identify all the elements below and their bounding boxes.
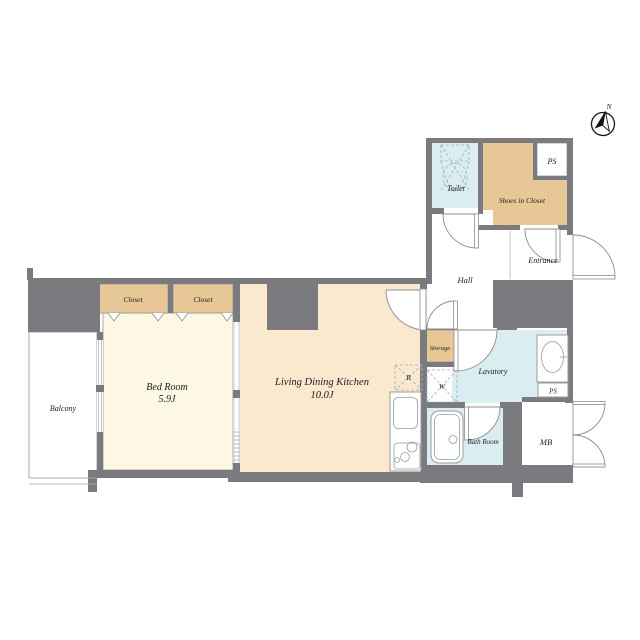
- storage-label: Storage: [430, 345, 450, 352]
- wall: [424, 362, 457, 367]
- lavatory-door-leaf: [454, 330, 458, 371]
- washer-label: W: [439, 382, 446, 391]
- meter-box-label: MB: [539, 437, 552, 447]
- storage-door-arc: [427, 301, 455, 329]
- wall: [420, 465, 573, 483]
- wall: [478, 143, 483, 214]
- wall: [426, 138, 432, 284]
- shoes-in-closet-label: Shoes in Closet: [499, 196, 546, 205]
- ps-upper-label: PS: [547, 157, 557, 166]
- lavatory-label: Lavatory: [478, 367, 508, 376]
- hall-label: Hall: [456, 275, 473, 285]
- wall: [420, 284, 427, 289]
- room-meter-box: [522, 402, 567, 465]
- meter-box-door-arc: [573, 403, 605, 435]
- refrigerator-label: R: [405, 373, 411, 382]
- bedroom-area-label: 5.9J: [159, 394, 177, 405]
- wall: [168, 284, 173, 313]
- sliding-door-stop: [233, 390, 240, 398]
- balcony-label: Balcony: [50, 404, 77, 413]
- wall: [493, 280, 573, 328]
- entrance-door-leaf: [573, 276, 615, 280]
- wall: [522, 397, 573, 402]
- wall: [512, 483, 523, 497]
- closet-left-label: Closet: [123, 295, 143, 304]
- bedroom-label: Bed Room: [146, 382, 187, 393]
- ldk-door-leaf: [420, 289, 426, 330]
- bathtub-icon: [431, 411, 463, 463]
- bath-room-label: Bath Room: [467, 438, 498, 446]
- ldk-label: Living Dining Kitchen: [274, 377, 369, 388]
- meter-box-door-leaf: [573, 464, 605, 467]
- wall: [497, 325, 517, 330]
- meter-box-door-leaf: [573, 402, 605, 405]
- compass-north-icon: N: [590, 102, 617, 137]
- wall: [233, 284, 240, 322]
- wall: [97, 332, 103, 340]
- wall: [228, 472, 430, 482]
- wall: [503, 402, 522, 465]
- toilet-label: Toilet: [447, 184, 466, 193]
- wall: [95, 470, 240, 478]
- wall: [567, 138, 573, 235]
- ps-lower-label: PS: [548, 388, 557, 396]
- wall-pillar: [267, 284, 318, 330]
- lavatory-sink-icon: [537, 335, 568, 382]
- wall: [500, 402, 520, 408]
- floorplan: N Balcony Bed Room 5.9J Closet Closet Li…: [0, 0, 640, 640]
- entrance-door-arc: [573, 235, 615, 277]
- floorplan-drawing: N Balcony Bed Room 5.9J Closet Closet Li…: [0, 0, 640, 640]
- wall: [426, 138, 573, 143]
- wall: [97, 432, 103, 470]
- toilet-door-leaf: [475, 214, 479, 248]
- wall: [100, 278, 426, 284]
- closet-right-label: Closet: [193, 295, 213, 304]
- kitchen-counter: [390, 392, 421, 471]
- compass-north-label: N: [605, 102, 612, 111]
- bath-door-leaf: [465, 407, 469, 440]
- wall-ps-border: [533, 176, 567, 180]
- window-mullion: [96, 385, 104, 392]
- meter-box-door-arc: [573, 435, 605, 467]
- wall: [420, 402, 465, 408]
- wall: [432, 208, 444, 214]
- wall-ps-border: [533, 143, 537, 180]
- room-toilet: [432, 143, 478, 208]
- ldk-area-label: 10.0J: [310, 390, 334, 401]
- wall: [28, 278, 100, 332]
- wall: [233, 463, 240, 471]
- entrance-label: Entrance: [527, 256, 558, 265]
- storage-door-leaf: [454, 301, 458, 329]
- wall: [478, 225, 520, 230]
